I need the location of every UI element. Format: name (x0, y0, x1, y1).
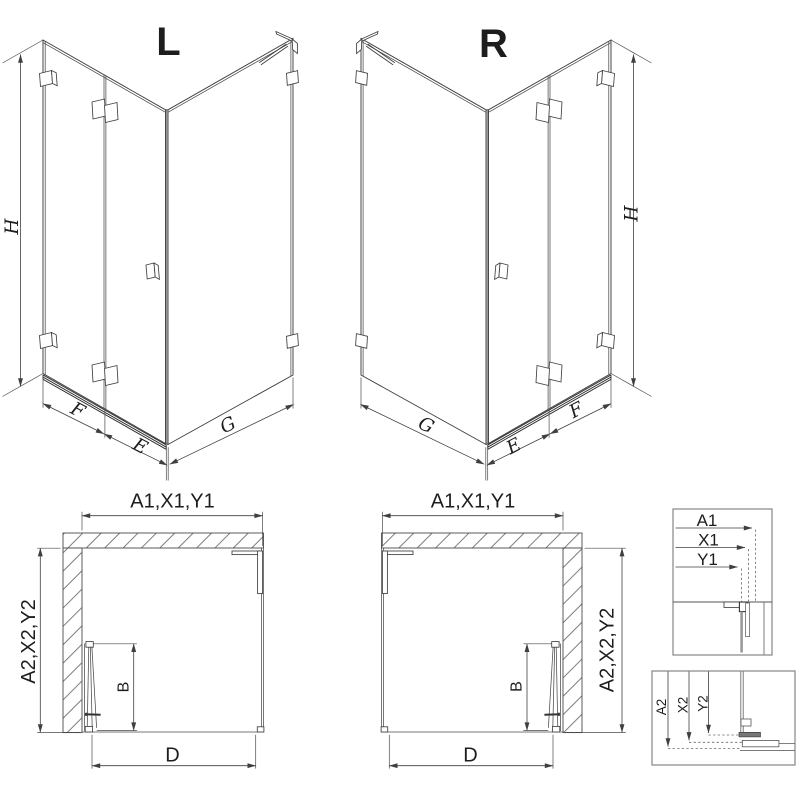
plan-right-width-label: A1,X1,Y1 (431, 491, 516, 513)
plan-left-opening-label: D (165, 745, 179, 767)
shower-enclosure-technical-drawing: L H F E G R H F E G A1,X1,Y1 A2,X2,Y2 B … (0, 0, 800, 800)
plan-right-depth-label: A2,X2,Y2 (597, 608, 619, 693)
detail-box-width: A1 X1 Y1 (673, 509, 772, 655)
plan-left-side-wall (63, 548, 82, 733)
detail-a2-label: A2 (654, 699, 669, 716)
plan-left-door-label: B (116, 682, 133, 693)
iso-right-height-label: H (622, 205, 643, 223)
detail-box-depth: A2 X2 Y2 (652, 671, 795, 765)
drawing-canvas: L H F E G R H F E G A1,X1,Y1 A2,X2,Y2 B … (0, 0, 800, 800)
detail-y1-label: Y1 (697, 550, 718, 569)
plan-left-depth-label: A2,X2,Y2 (18, 599, 40, 684)
plan-right-opening-label: D (463, 745, 477, 767)
detail-a1-label: A1 (697, 511, 718, 530)
detail-y2-label: Y2 (695, 695, 710, 712)
detail-x2-label: X2 (676, 697, 691, 714)
iso-left-variant-label: L (156, 20, 180, 64)
iso-right-variant-label: R (479, 22, 508, 66)
detail-x1-label: X1 (698, 530, 719, 549)
plan-right-top-wall (382, 533, 583, 548)
plan-left-width-label: A1,X1,Y1 (130, 491, 215, 513)
plan-right-side-wall (563, 548, 582, 733)
iso-left-height-label: H (2, 218, 23, 236)
plan-left-top-wall (63, 533, 264, 548)
detail-box-width-frame (673, 509, 772, 655)
plan-right-door-label: B (509, 681, 526, 692)
